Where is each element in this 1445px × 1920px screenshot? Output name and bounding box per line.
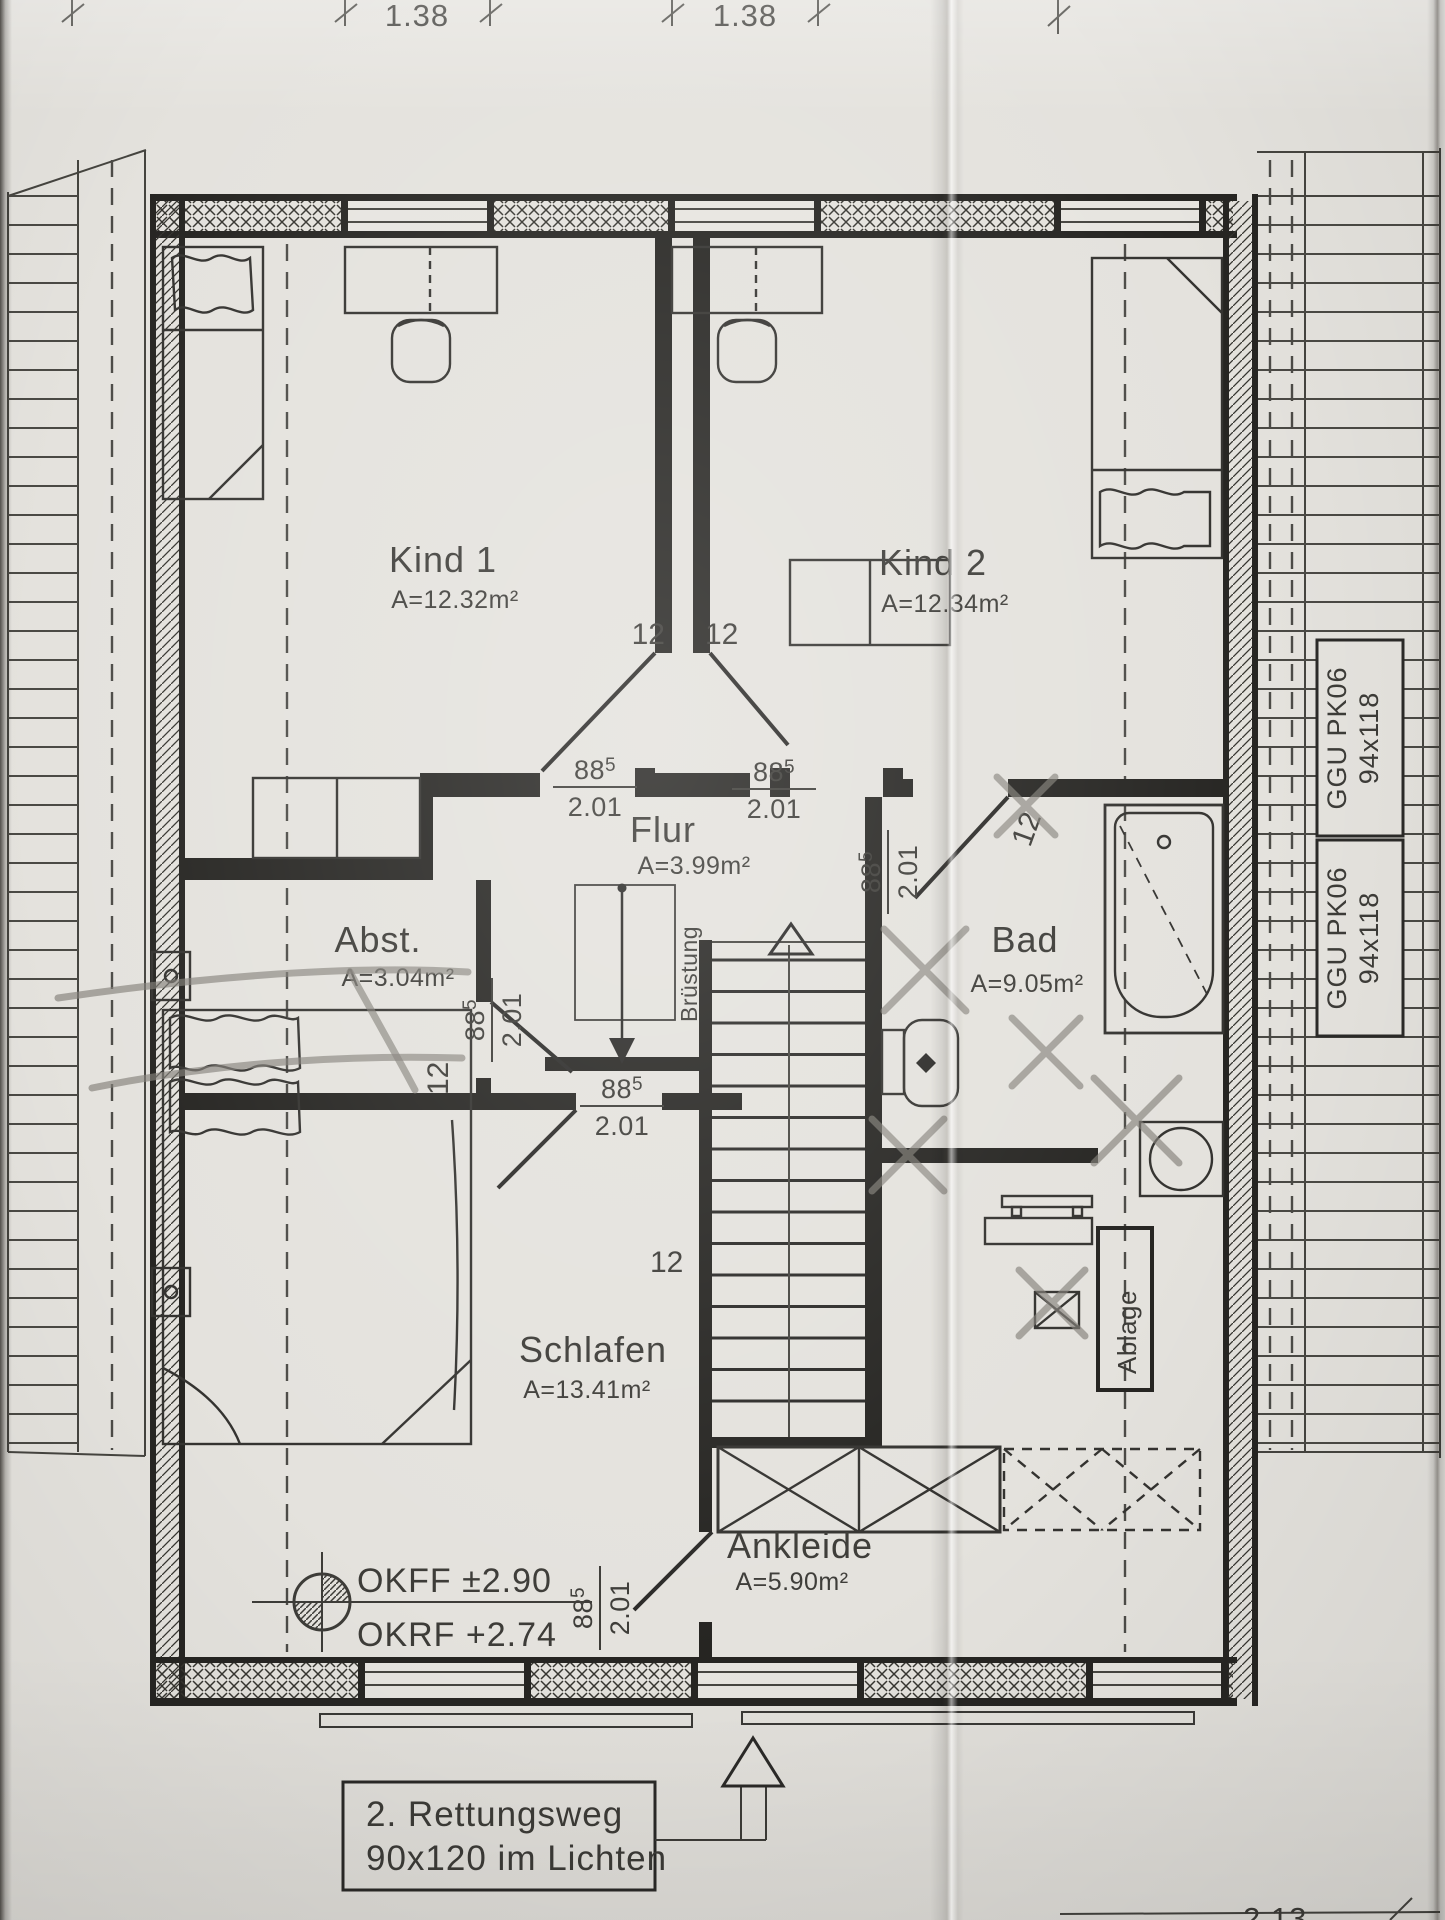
svg-text:94x118: 94x118 xyxy=(1354,692,1384,785)
top-dimension-line: 1.38 1.38 xyxy=(62,0,1070,34)
svg-text:Ankleide: Ankleide xyxy=(727,1525,873,1566)
room-label-kind1: Kind 1 A=12.32m² xyxy=(389,539,519,614)
wall-thickness-label: 12 xyxy=(650,1246,683,1279)
bottom-dimension-partial: 2.13 xyxy=(1060,1898,1440,1920)
svg-text:Kind 1: Kind 1 xyxy=(389,539,497,580)
wall-thickness-label: 12 xyxy=(632,618,665,651)
svg-text:A=12.32m²: A=12.32m² xyxy=(391,586,519,614)
svg-text:Schlafen: Schlafen xyxy=(519,1329,667,1370)
scanned-floorplan-page: 1.38 1.38 xyxy=(0,0,1445,1920)
wall-thickness-label: 12 xyxy=(422,1062,455,1095)
roof-strip-left xyxy=(8,150,146,1456)
svg-text:885: 885 xyxy=(601,1074,643,1104)
wall-thickness-label: 12 xyxy=(1006,808,1048,851)
svg-text:A=9.05m²: A=9.05m² xyxy=(970,970,1083,998)
staircase xyxy=(712,924,865,1437)
furniture-kind1-desk xyxy=(345,247,497,382)
svg-text:885: 885 xyxy=(568,1587,598,1629)
furniture-kind2-bed xyxy=(1092,258,1222,558)
furniture-kind1-dresser xyxy=(253,778,420,858)
door-dimension-label: 885 2.01 xyxy=(580,1074,664,1141)
wall-thickness-label: 12 xyxy=(705,618,738,651)
svg-text:A=3.99m²: A=3.99m² xyxy=(637,852,750,880)
flur-dimension-arrow xyxy=(575,884,675,1065)
furniture-bench xyxy=(985,1196,1092,1244)
furniture-wardrobe xyxy=(718,1447,1000,1532)
svg-text:2.01: 2.01 xyxy=(605,1581,635,1636)
stair-direction-start-icon xyxy=(770,924,812,954)
roof-window-label: GGU PK06 94x118 xyxy=(1317,640,1403,836)
svg-text:Bad: Bad xyxy=(991,919,1058,960)
svg-text:Abst.: Abst. xyxy=(334,919,421,960)
svg-text:GGU PK06: GGU PK06 xyxy=(1322,866,1352,1009)
escape-arrow-icon xyxy=(723,1738,783,1786)
furniture-toilet xyxy=(882,1020,958,1106)
room-label-flur: Flur A=3.99m² xyxy=(630,809,751,880)
escape-route-note: 2. Rettungsweg 90x120 im Lichten xyxy=(343,1738,783,1890)
svg-text:94x118: 94x118 xyxy=(1354,892,1384,985)
door-dimension-label: 885 2.01 xyxy=(568,1566,635,1650)
svg-text:2.01: 2.01 xyxy=(893,845,923,900)
room-label-kind2: Kind 2 A=12.34m² xyxy=(879,542,1009,618)
svg-text:OKRF +2.74: OKRF +2.74 xyxy=(357,1616,557,1654)
svg-text:Kind 2: Kind 2 xyxy=(879,542,987,583)
svg-text:2.13: 2.13 xyxy=(1243,1901,1307,1920)
roof-window-label: GGU PK06 94x118 xyxy=(1317,840,1403,1036)
furniture-bathtub xyxy=(1105,805,1223,1033)
svg-text:OKFF ±2.90: OKFF ±2.90 xyxy=(357,1562,552,1600)
svg-text:2. Rettungsweg: 2. Rettungsweg xyxy=(366,1795,623,1834)
svg-text:Flur: Flur xyxy=(630,809,696,850)
level-marker: OKFF ±2.90 OKRF +2.74 xyxy=(252,1552,592,1654)
top-dimension-text: 1.38 xyxy=(713,0,777,33)
bruestung-label: Brüstung xyxy=(676,926,702,1022)
svg-text:A=13.41m²: A=13.41m² xyxy=(523,1376,651,1404)
svg-text:2.01: 2.01 xyxy=(568,792,623,822)
svg-text:2.01: 2.01 xyxy=(747,794,802,824)
furniture-wardrobe-dashed xyxy=(1004,1449,1200,1530)
svg-text:2.01: 2.01 xyxy=(595,1111,650,1141)
top-dimension-text: 1.38 xyxy=(385,0,449,33)
svg-text:GGU PK06: GGU PK06 xyxy=(1322,666,1352,809)
room-label-bad: Bad A=9.05m² xyxy=(970,919,1083,998)
svg-text:A=5.90m²: A=5.90m² xyxy=(735,1568,848,1596)
svg-text:A=12.34m²: A=12.34m² xyxy=(881,590,1009,618)
svg-text:90x120 im Lichten: 90x120 im Lichten xyxy=(366,1839,667,1878)
room-label-schlafen: Schlafen A=13.41m² xyxy=(519,1329,667,1404)
floorplan-drawing: 1.38 1.38 xyxy=(0,0,1445,1920)
svg-text:2.01: 2.01 xyxy=(497,993,527,1048)
svg-text:885: 885 xyxy=(460,999,490,1041)
svg-text:885: 885 xyxy=(574,755,616,785)
ablage-label: Ablage xyxy=(1112,1290,1142,1374)
door-dimension-label: 885 2.01 xyxy=(553,755,637,822)
room-label-ankleide: Ankleide A=5.90m² xyxy=(727,1525,873,1596)
